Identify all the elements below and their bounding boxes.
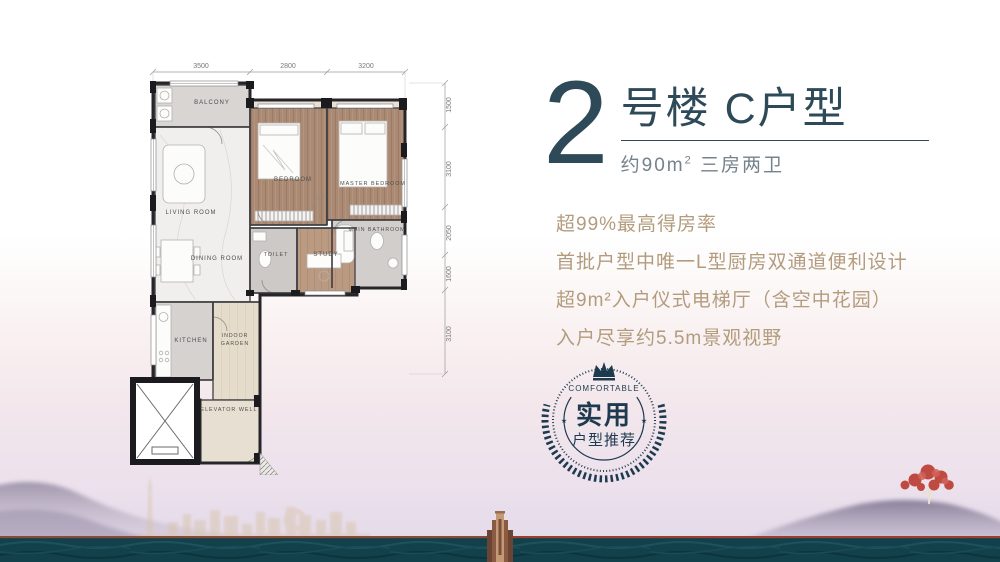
label-dining: DINING ROOM (191, 256, 243, 262)
feature-item: 超9m²入户仪式电梯厅（含空中花园） (556, 282, 908, 320)
crown-icon (593, 362, 615, 381)
entry-hatch (260, 453, 278, 475)
dim-right-2050: 2050 (446, 225, 453, 241)
city-skyline (140, 476, 370, 540)
feature-item: 首批户型中唯一L型厨房双通道便利设计 (556, 244, 908, 282)
elevator-shaft (133, 380, 197, 462)
recommendation-badge: COMFORTABLE 实用 户型推荐 ★ ★ (540, 356, 668, 484)
floorplan: 3500 2800 3200 1500 3100 2050 1600 3100 (125, 55, 470, 475)
poster-page: 3500 2800 3200 1500 3100 2050 1600 3100 (0, 0, 1000, 562)
label-bathroom: MAIN BATHROOM (349, 227, 406, 233)
unit-title: 号楼 C户型 (621, 86, 933, 133)
label-garden-2: GARDEN (221, 341, 249, 347)
dim-right-3100a: 3100 (446, 161, 453, 177)
red-tree (901, 465, 954, 505)
unit-spec: 约90m2 三房两卫 (621, 150, 933, 177)
badge-star-right: ★ (641, 417, 647, 425)
dim-top-3200: 3200 (358, 63, 374, 70)
dim-right-1500: 1500 (446, 97, 453, 113)
badge-sub-label: 户型推荐 (572, 432, 636, 449)
label-study: STUDY (313, 252, 338, 258)
dim-right-3100b: 3100 (446, 326, 453, 342)
title-block: 2 号楼 C户型 约90m2 三房两卫 (543, 66, 933, 182)
feature-list: 超99%最高得房率 首批户型中唯一L型厨房双通道便利设计 超9m²入户仪式电梯厅… (556, 206, 908, 358)
title-divider (621, 140, 929, 141)
label-balcony: BALCONY (194, 100, 230, 106)
badge-top-label: COMFORTABLE (568, 384, 639, 393)
room-garden (213, 302, 260, 400)
building-number: 2 (543, 66, 607, 182)
dim-right-1600: 1600 (446, 266, 453, 282)
label-garden-1: INDOOR (222, 333, 249, 339)
label-toilet: TOILET (264, 252, 289, 258)
label-living: LIVING ROOM (165, 210, 216, 216)
badge-star-left: ★ (561, 417, 567, 425)
badge-main-label: 实用 (576, 400, 632, 430)
label-kitchen: KITCHEN (174, 338, 207, 344)
feature-item: 超99%最高得房率 (556, 206, 908, 244)
label-master: MASTER BEDROOM (340, 181, 406, 187)
feature-item: 入户尽享约5.5m景观视野 (556, 320, 908, 358)
label-elevator: ELEVATOR WELL (200, 407, 257, 413)
label-bedroom: BEDROOM (274, 177, 312, 183)
deco-tower (484, 511, 516, 562)
dim-top-3500: 3500 (193, 63, 209, 70)
dim-top-2800: 2800 (280, 63, 296, 70)
